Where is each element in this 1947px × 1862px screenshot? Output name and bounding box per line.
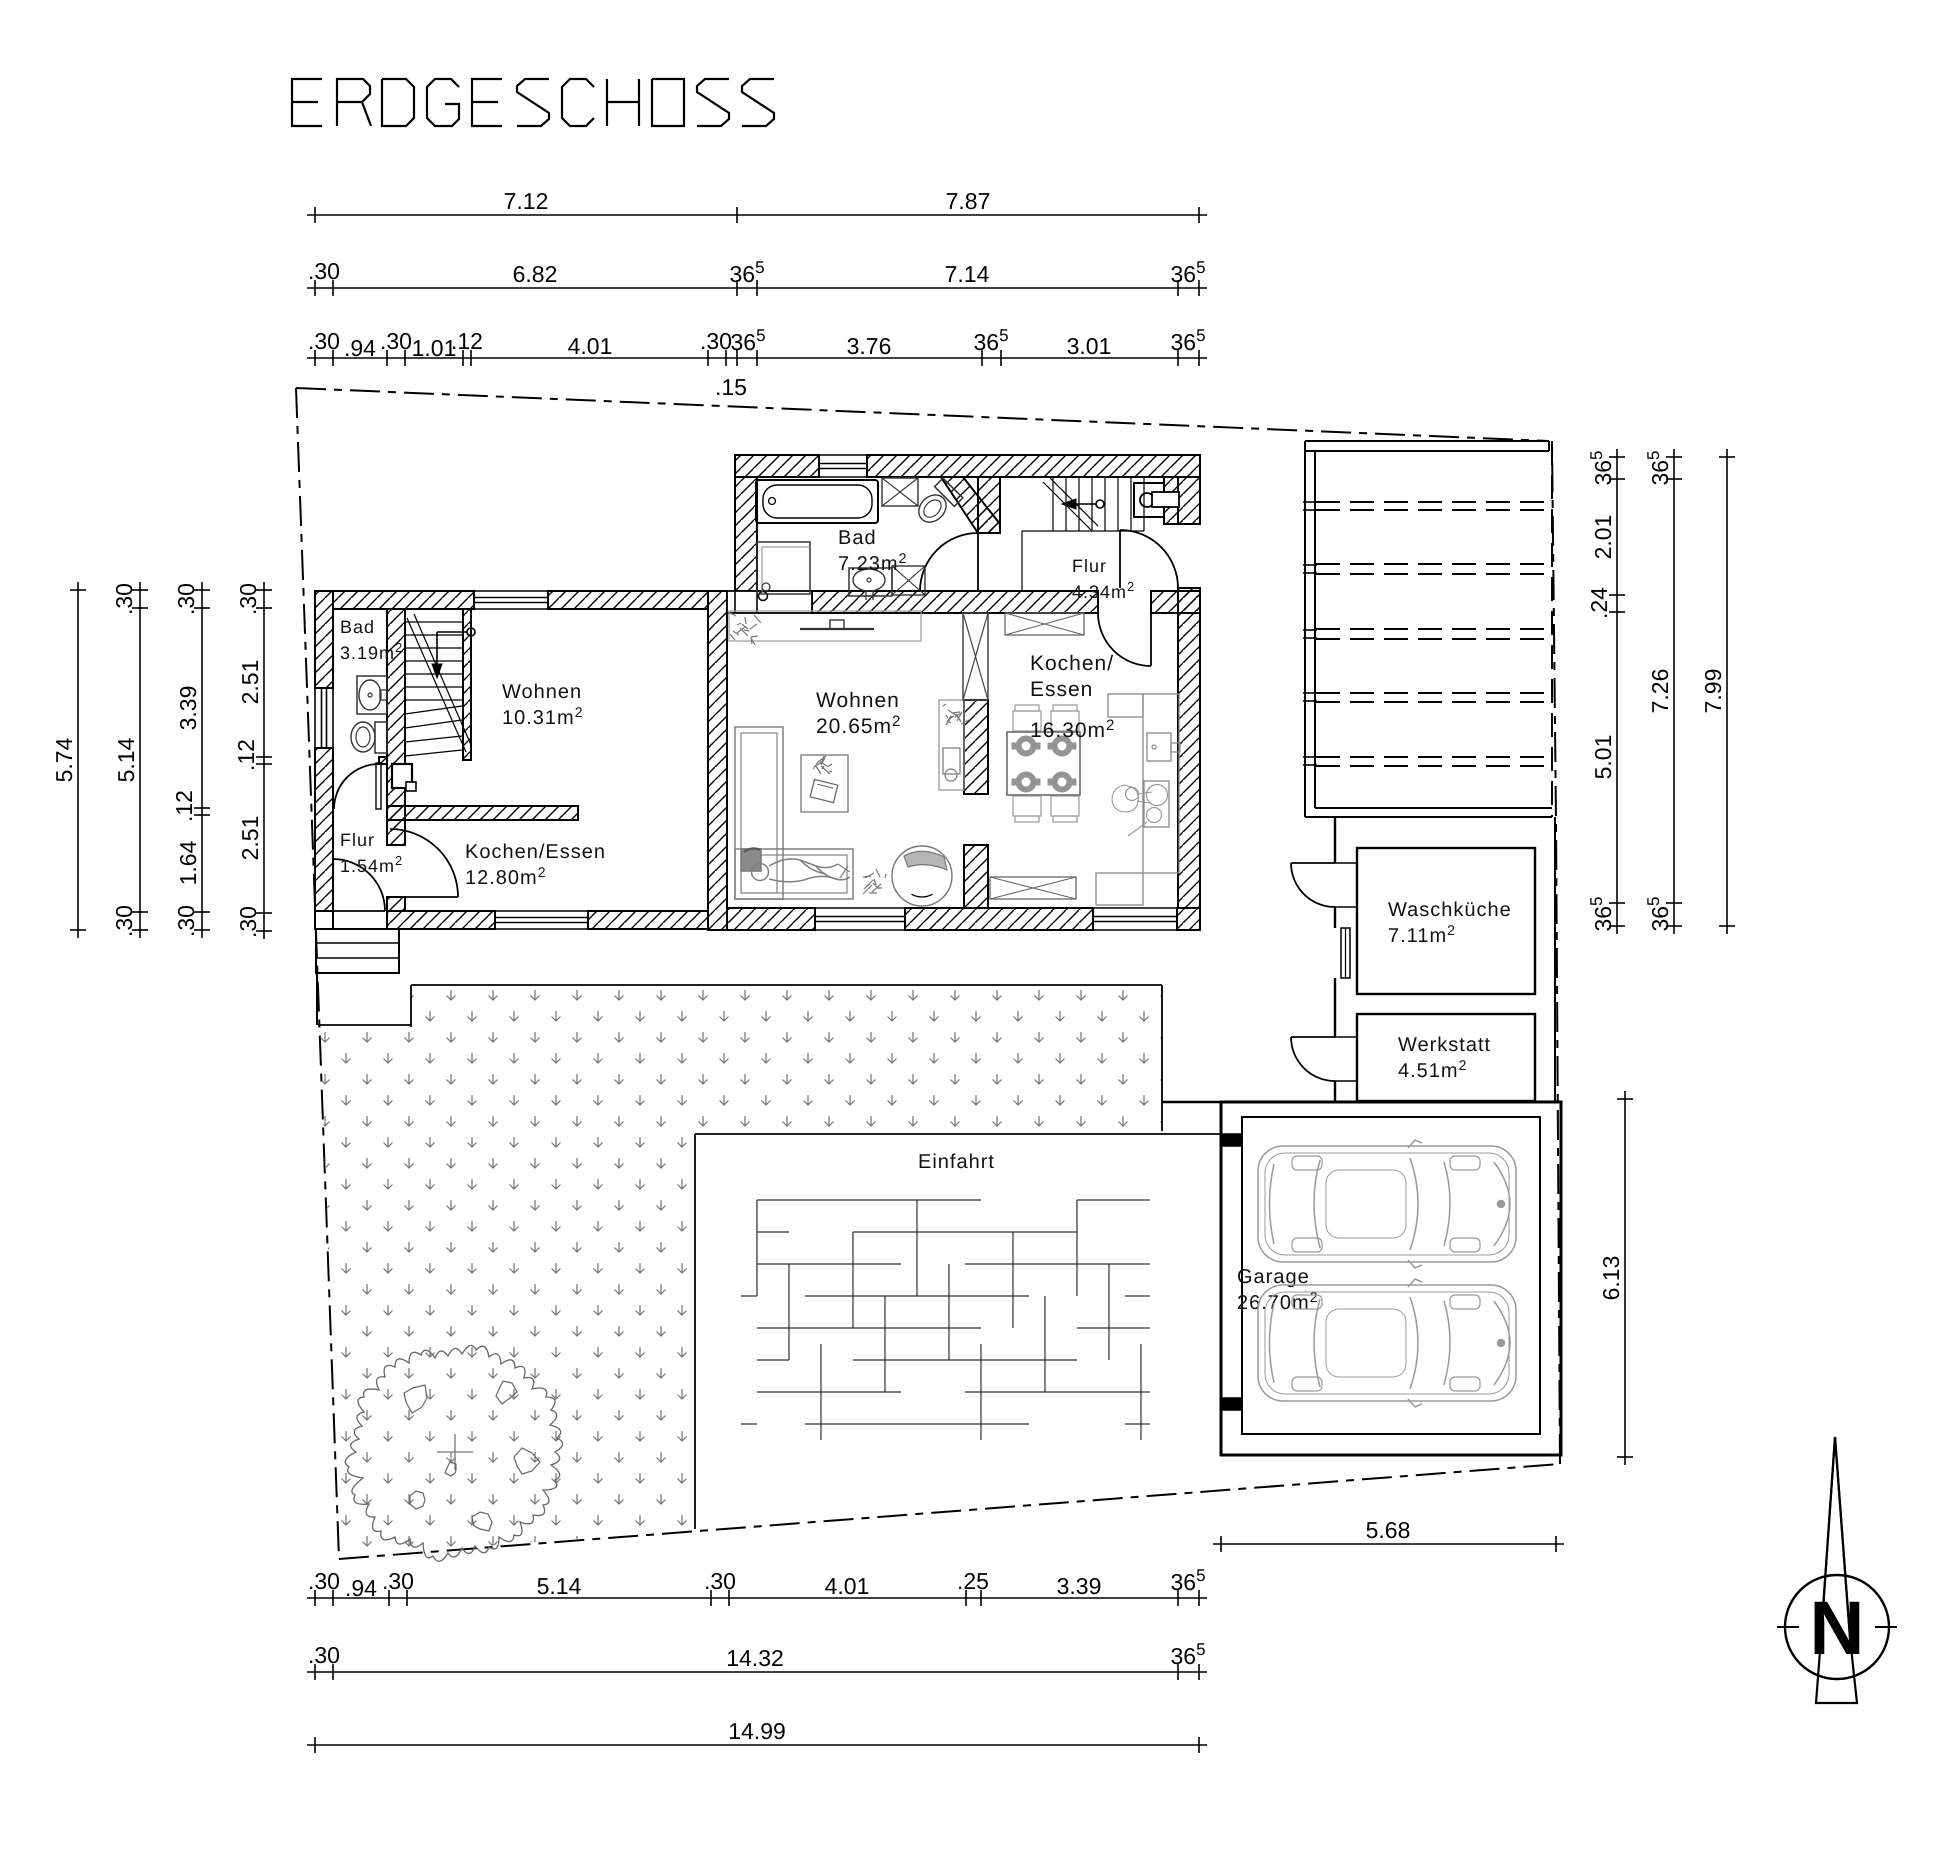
svg-text:6.13: 6.13	[1598, 1256, 1624, 1301]
svg-text:Einfahrt: Einfahrt	[918, 1151, 995, 1173]
svg-text:3.39: 3.39	[1057, 1573, 1102, 1599]
svg-text:4.51m2: 4.51m2	[1398, 1057, 1467, 1082]
svg-text:5.14: 5.14	[113, 737, 139, 782]
svg-text:.25: .25	[957, 1568, 989, 1594]
svg-text:5.01: 5.01	[1590, 735, 1616, 780]
svg-text:1.64: 1.64	[175, 840, 201, 885]
svg-text:4.34m2: 4.34m2	[1072, 579, 1135, 602]
svg-text:.30: .30	[308, 328, 340, 354]
svg-text:.15: .15	[715, 374, 747, 400]
svg-text:.30: .30	[308, 1568, 340, 1594]
svg-text:3.19m2: 3.19m2	[340, 640, 403, 663]
svg-text:.12: .12	[233, 739, 259, 771]
svg-text:.30: .30	[111, 905, 137, 937]
svg-text:14.99: 14.99	[728, 1718, 786, 1744]
svg-text:.30: .30	[308, 1642, 340, 1668]
svg-text:1.54m2: 1.54m2	[340, 853, 403, 876]
svg-text:N: N	[1810, 1586, 1865, 1671]
svg-text:.12: .12	[171, 790, 197, 822]
svg-text:Kochen/Essen: Kochen/Essen	[465, 841, 606, 863]
svg-text:.30: .30	[704, 1568, 736, 1594]
svg-text:7.23m2: 7.23m2	[838, 550, 907, 575]
svg-text:26.70m2: 26.70m2	[1237, 1289, 1319, 1314]
svg-text:.24: .24	[1586, 587, 1612, 619]
svg-text:6.82: 6.82	[513, 261, 558, 287]
svg-text:Flur: Flur	[340, 830, 375, 850]
svg-text:2.51: 2.51	[237, 660, 263, 705]
svg-text:.30: .30	[700, 328, 732, 354]
svg-text:16.30m2: 16.30m2	[1030, 717, 1115, 742]
svg-text:.30: .30	[173, 583, 199, 615]
svg-text:12.80m2: 12.80m2	[465, 864, 547, 889]
svg-text:.12: .12	[451, 328, 483, 354]
svg-text:3.39: 3.39	[175, 686, 201, 731]
svg-text:20.65m2: 20.65m2	[816, 713, 901, 738]
svg-text:.30: .30	[382, 1568, 414, 1594]
svg-text:10.31m2: 10.31m2	[502, 704, 584, 729]
svg-text:.30: .30	[111, 583, 137, 615]
svg-text:2.01: 2.01	[1590, 515, 1616, 560]
svg-text:7.87: 7.87	[946, 188, 991, 214]
svg-text:3.01: 3.01	[1067, 333, 1112, 359]
svg-text:Werkstatt: Werkstatt	[1398, 1034, 1491, 1056]
svg-text:2.51: 2.51	[237, 816, 263, 861]
svg-text:7.14: 7.14	[945, 261, 990, 287]
svg-text:Kochen/: Kochen/	[1030, 652, 1114, 675]
svg-text:1.01: 1.01	[412, 335, 457, 361]
svg-text:7.11m2: 7.11m2	[1388, 922, 1456, 947]
svg-text:Wohnen: Wohnen	[816, 689, 900, 712]
svg-text:7.12: 7.12	[504, 188, 549, 214]
svg-text:3.76: 3.76	[847, 333, 892, 359]
svg-text:14.32: 14.32	[726, 1645, 784, 1671]
svg-text:5.68: 5.68	[1366, 1517, 1411, 1543]
svg-text:.30: .30	[235, 583, 261, 615]
svg-text:Flur: Flur	[1072, 556, 1107, 576]
svg-text:4.01: 4.01	[568, 333, 613, 359]
svg-text:7.99: 7.99	[1700, 669, 1726, 714]
svg-text:Bad: Bad	[340, 617, 375, 637]
svg-text:Bad: Bad	[838, 527, 877, 549]
svg-text:Wohnen: Wohnen	[502, 681, 582, 703]
svg-text:.30: .30	[308, 258, 340, 284]
svg-text:Waschküche: Waschküche	[1388, 899, 1512, 921]
svg-text:.94: .94	[344, 335, 376, 361]
svg-text:4.01: 4.01	[825, 1573, 870, 1599]
svg-text:.30: .30	[173, 905, 199, 937]
svg-text:5.14: 5.14	[537, 1573, 582, 1599]
svg-text:.30: .30	[235, 906, 261, 938]
svg-text:5.74: 5.74	[51, 737, 77, 782]
svg-text:.30: .30	[380, 328, 412, 354]
svg-text:Essen: Essen	[1030, 678, 1093, 701]
svg-text:.94: .94	[345, 1575, 377, 1601]
svg-text:7.26: 7.26	[1647, 669, 1673, 714]
